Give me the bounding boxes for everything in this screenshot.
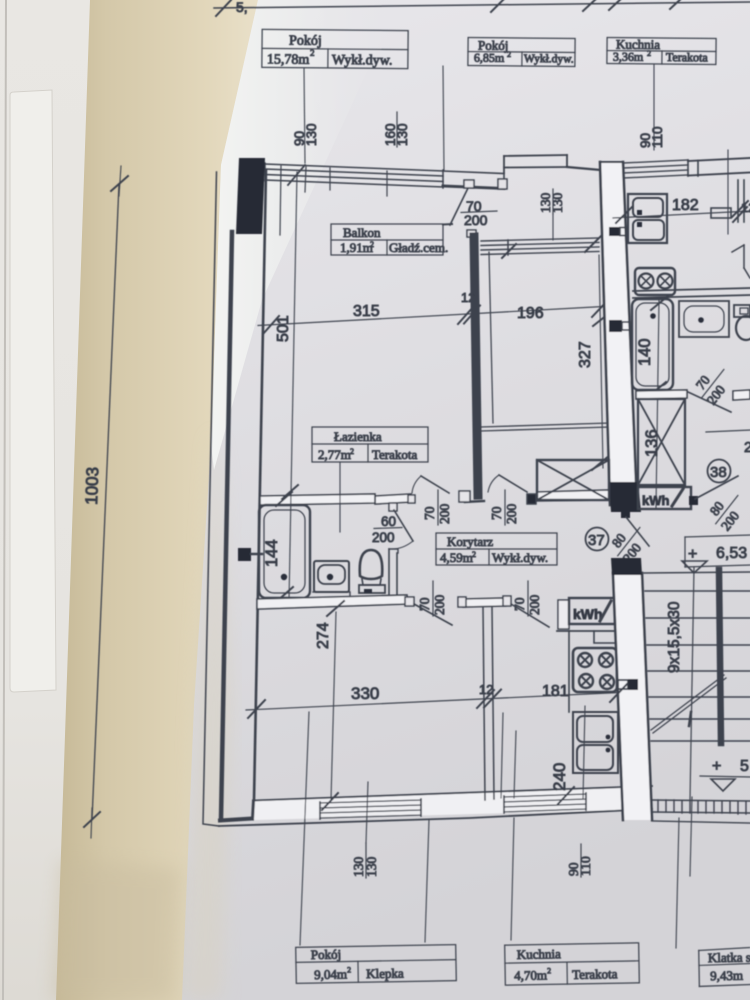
svg-text:200: 200 (437, 504, 452, 525)
svg-text:60: 60 (381, 514, 396, 529)
svg-text:5,: 5, (236, 0, 248, 15)
svg-text:182: 182 (672, 197, 699, 214)
svg-text:9,04m: 9,04m (314, 967, 347, 983)
svg-text:38: 38 (710, 464, 727, 481)
svg-text:Korytarz: Korytarz (447, 534, 493, 549)
svg-text:2: 2 (310, 48, 315, 58)
svg-text:2: 2 (370, 240, 374, 249)
svg-text:4,59m: 4,59m (440, 550, 473, 565)
svg-text:1,91m: 1,91m (340, 240, 373, 255)
svg-text:70: 70 (422, 506, 437, 520)
svg-text:200: 200 (527, 595, 542, 616)
svg-text:136: 136 (643, 429, 661, 457)
svg-text:2: 2 (744, 439, 750, 456)
svg-text:2,77m: 2,77m (318, 447, 351, 462)
svg-text:Wykł.dyw.: Wykł.dyw. (492, 550, 548, 565)
svg-text:15,78m: 15,78m (267, 52, 310, 67)
svg-text:Klepka: Klepka (366, 966, 404, 982)
svg-text:70: 70 (417, 597, 432, 611)
svg-text:Kuchnia: Kuchnia (517, 946, 562, 962)
svg-text:9x15,5x30: 9x15,5x30 (666, 601, 683, 673)
svg-text:2: 2 (472, 550, 476, 559)
svg-text:kWh: kWh (642, 493, 670, 508)
svg-text:kWh: kWh (573, 606, 603, 622)
svg-text:Terakota: Terakota (666, 50, 709, 64)
svg-text:130: 130 (304, 123, 319, 146)
svg-text:181: 181 (542, 683, 569, 700)
svg-text:2: 2 (350, 447, 354, 456)
svg-text:2: 2 (347, 965, 351, 974)
svg-text:70: 70 (489, 506, 504, 520)
svg-text:2: 2 (647, 49, 651, 58)
svg-text:Terakota: Terakota (372, 447, 418, 462)
svg-text:110: 110 (650, 126, 665, 148)
svg-text:2: 2 (507, 50, 511, 59)
svg-text:4,70m: 4,70m (514, 967, 547, 983)
svg-text:501: 501 (275, 315, 292, 342)
svg-text:240: 240 (550, 763, 569, 791)
svg-text:274: 274 (315, 622, 332, 649)
svg-text:327: 327 (577, 341, 594, 368)
svg-text:9,43m: 9,43m (710, 968, 743, 984)
svg-text:6,53: 6,53 (716, 545, 747, 562)
svg-text:12: 12 (479, 682, 493, 697)
svg-text:144: 144 (263, 539, 281, 567)
svg-text:5: 5 (740, 758, 749, 775)
svg-text:196: 196 (517, 305, 544, 322)
svg-text:200: 200 (372, 530, 395, 545)
svg-text:Klatka s: Klatka s (708, 950, 750, 966)
svg-text:+: + (712, 758, 721, 775)
svg-text:Gładź.cem.: Gładź.cem. (389, 240, 448, 255)
svg-text:200: 200 (504, 504, 519, 525)
svg-text:110: 110 (578, 856, 593, 876)
svg-text:2: 2 (547, 966, 551, 975)
svg-text:Balkon: Balkon (343, 225, 381, 240)
svg-text:200: 200 (464, 212, 488, 228)
svg-text:Pokój: Pokój (289, 34, 322, 49)
svg-text:37: 37 (588, 532, 605, 549)
svg-text:200: 200 (432, 595, 447, 616)
svg-text:3,36m: 3,36m (613, 50, 644, 64)
svg-text:Wykł.dyw.: Wykł.dyw. (332, 53, 393, 69)
svg-text:Wykł.dyw.: Wykł.dyw. (524, 53, 574, 65)
svg-text:12: 12 (461, 290, 475, 305)
svg-text:315: 315 (353, 303, 380, 320)
svg-text:Pokój: Pokój (311, 947, 342, 963)
svg-text:Terakota: Terakota (572, 966, 618, 982)
svg-text:6,85m: 6,85m (474, 51, 505, 65)
svg-text:70: 70 (512, 597, 527, 611)
svg-text:Łazienka: Łazienka (334, 429, 382, 444)
svg-text:1003: 1003 (82, 467, 102, 505)
svg-text:140: 140 (636, 338, 654, 366)
svg-text:330: 330 (351, 684, 379, 703)
svg-text:130: 130 (550, 193, 565, 214)
